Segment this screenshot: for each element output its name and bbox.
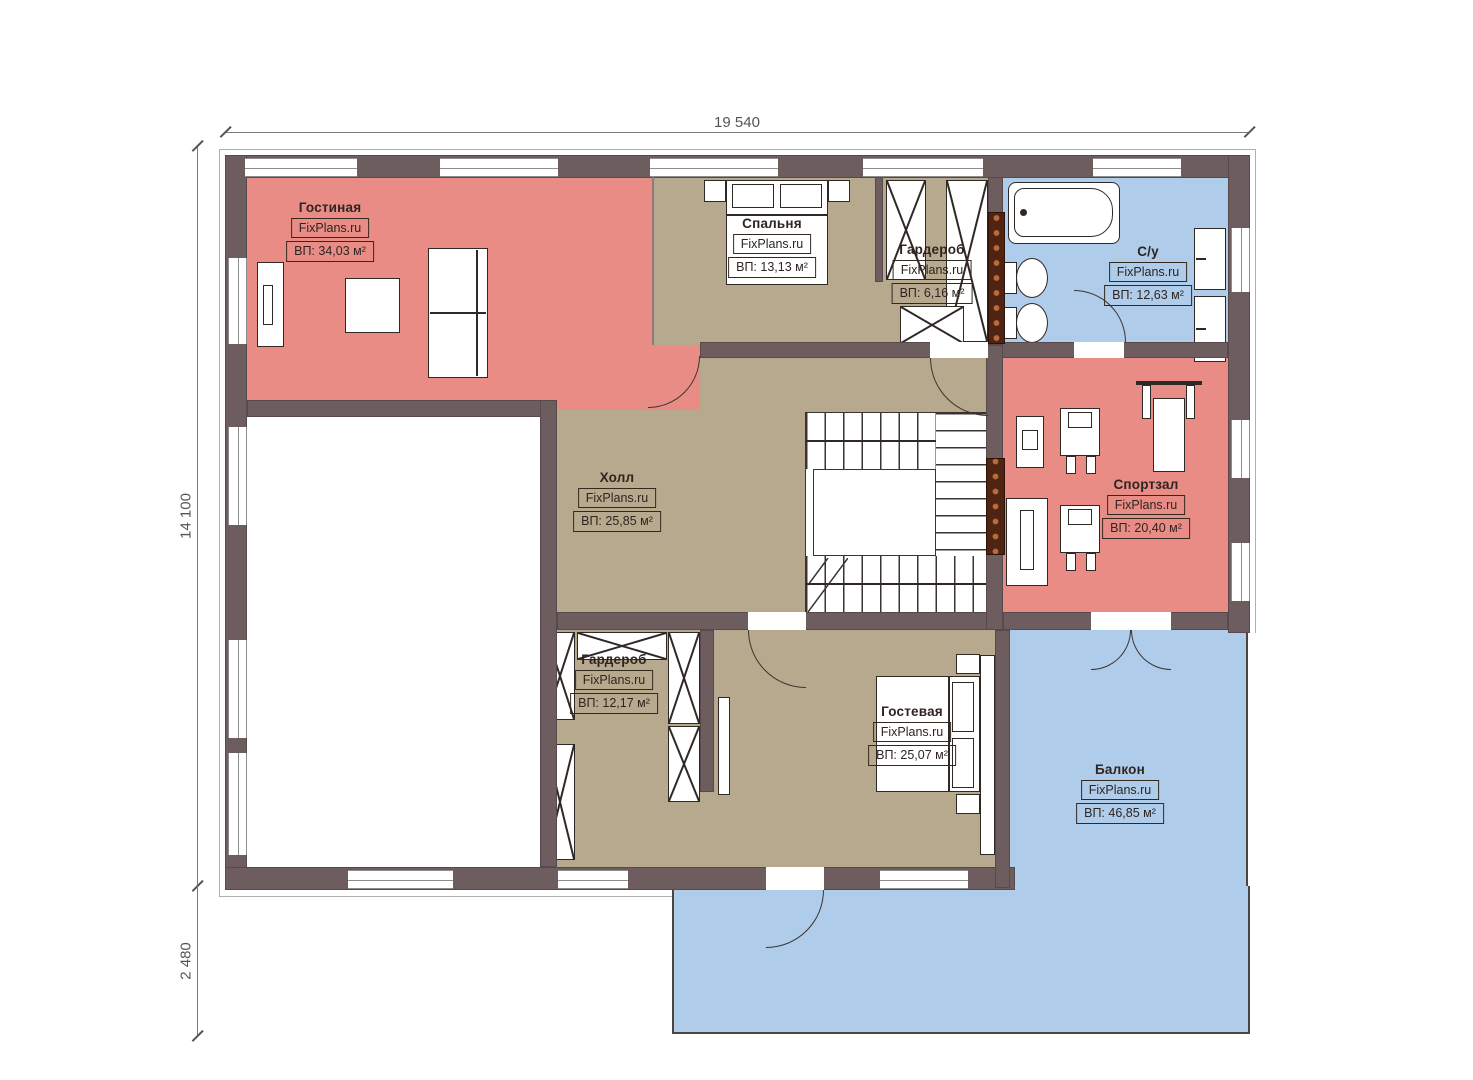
gym-machine-center-top-pad	[1068, 412, 1092, 428]
room-label-bedroom: Спальня FixPlans.ru ВП: 13,13 м²	[728, 216, 816, 278]
room-name: Гардероб	[570, 652, 658, 667]
door-opening-hall-corridor	[930, 342, 988, 358]
room-watermark: FixPlans.ru	[1107, 495, 1186, 515]
dimension-text-left-lower: 2 480	[178, 942, 195, 980]
partition-living-bedroom	[652, 177, 654, 345]
room-label-living: Гостиная FixPlans.ru ВП: 34,03 м²	[286, 200, 374, 262]
room-watermark: FixPlans.ru	[1109, 262, 1188, 282]
room-balcony-area-right	[1010, 628, 1248, 888]
window-top-3	[650, 158, 778, 177]
room-balcony-area-bottom	[672, 886, 1250, 1034]
bath-cabinet-2-handle	[1196, 328, 1206, 330]
room-watermark: FixPlans.ru	[873, 722, 952, 742]
wall-guest-right	[995, 630, 1010, 888]
bath-cabinet-1-handle	[1196, 258, 1206, 260]
room-watermark: FixPlans.ru	[893, 260, 972, 280]
room-name: С/у	[1104, 244, 1192, 259]
door-opening-bathroom	[1074, 342, 1124, 358]
window-left-3	[228, 640, 247, 738]
room-watermark: FixPlans.ru	[291, 218, 370, 238]
stair-mid-line-top	[806, 440, 936, 442]
gym-machine-small-seat	[1022, 430, 1038, 450]
dimension-text-top: 19 540	[714, 114, 760, 131]
toilet-2-bowl	[1016, 303, 1048, 343]
gym-rack-bench	[1153, 398, 1185, 472]
room-name: Спальня	[728, 216, 816, 231]
outer-face-line-right	[1255, 149, 1256, 633]
staircase	[805, 412, 987, 614]
radiator-upper	[988, 212, 1005, 344]
gym-rack-upright-right	[1186, 385, 1195, 419]
wall-living-bottom	[247, 400, 557, 417]
stair-start-mark	[808, 558, 848, 612]
window-right-2	[1231, 420, 1250, 478]
stair-treads-right	[936, 413, 986, 556]
door-opening-guest-balcony	[766, 867, 824, 890]
room-label-hall: Холл FixPlans.ru ВП: 25,85 м²	[573, 470, 661, 532]
door-opening-gym-balcony	[1091, 612, 1171, 630]
room-area: ВП: 6,16 м²	[892, 283, 973, 303]
wall-bedroom-wardrobe-divider	[875, 177, 883, 282]
room-area: ВП: 46,85 м²	[1076, 803, 1164, 823]
room-area: ВП: 12,63 м²	[1104, 285, 1192, 305]
gym-machine-center-top-leg1	[1066, 456, 1076, 474]
outer-face-line-top	[219, 149, 1256, 150]
wardrobe-top-unit-3	[900, 306, 964, 344]
gym-machine-center-bottom-pad	[1068, 509, 1092, 525]
window-bottom-2	[558, 870, 628, 889]
stair-void	[813, 469, 936, 556]
room-label-gym: Спортзал FixPlans.ru ВП: 20,40 м²	[1102, 477, 1190, 539]
room-label-balcony: Балкон FixPlans.ru ВП: 46,85 м²	[1076, 762, 1164, 824]
wall-void-right	[540, 400, 557, 867]
living-sofa-cushion-line	[430, 312, 486, 314]
dimension-line-top	[225, 132, 1250, 133]
window-top-2	[440, 158, 558, 177]
mirror-panel	[718, 697, 730, 795]
bedroom-nightstand-right	[828, 180, 850, 202]
window-bottom-1	[348, 870, 453, 889]
window-right-1	[1231, 228, 1250, 292]
bathtub-inner	[1014, 188, 1113, 237]
guest-nightstand-bottom	[956, 794, 980, 814]
wardrobe-bottom-unit-4	[668, 632, 700, 724]
wardrobe-bottom-unit-5	[668, 726, 700, 802]
room-area: ВП: 34,03 м²	[286, 241, 374, 261]
living-console-inner	[263, 285, 273, 325]
guest-nightstand-top	[956, 654, 980, 674]
room-name: Гостевая	[868, 704, 956, 719]
window-top-5	[1093, 158, 1181, 177]
floor-plan-canvas: Гостиная FixPlans.ru ВП: 34,03 м² Спальн…	[0, 0, 1473, 1080]
window-bottom-3	[880, 870, 968, 889]
radiator-gym	[986, 458, 1005, 555]
bedroom-pillow-left	[732, 184, 774, 208]
dimension-line-left-lower	[197, 886, 198, 1036]
dimension-text-left: 14 100	[178, 493, 195, 539]
door-opening-hall-lower	[748, 612, 806, 630]
room-area: ВП: 25,85 м²	[573, 511, 661, 531]
bathtub-drain	[1020, 209, 1027, 216]
room-watermark: FixPlans.ru	[578, 488, 657, 508]
bedroom-pillow-right	[780, 184, 822, 208]
room-watermark: FixPlans.ru	[733, 234, 812, 254]
dimension-line-left	[197, 146, 198, 886]
room-area: ВП: 13,13 м²	[728, 257, 816, 277]
toilet-1-bowl	[1016, 258, 1048, 298]
wall-wardrobe-guest-divider	[700, 630, 714, 792]
room-area: ВП: 12,17 м²	[570, 693, 658, 713]
gym-machine-center-bottom-leg2	[1086, 553, 1096, 571]
guest-dresser	[980, 655, 995, 855]
window-left-2	[228, 427, 247, 525]
room-label-bathroom: С/у FixPlans.ru ВП: 12,63 м²	[1104, 244, 1192, 306]
outer-face-line-left	[219, 149, 220, 897]
window-top-4	[863, 158, 983, 177]
window-left-4	[228, 753, 247, 855]
room-name: Гостиная	[286, 200, 374, 215]
gym-bike-column	[1020, 510, 1034, 570]
room-label-wardrobe-bottom: Гардероб FixPlans.ru ВП: 12,17 м²	[570, 652, 658, 714]
outer-face-line-bottom	[219, 896, 674, 897]
room-area: ВП: 25,07 м²	[868, 745, 956, 765]
room-label-guest: Гостевая FixPlans.ru ВП: 25,07 м²	[868, 704, 956, 766]
window-top-1	[245, 158, 357, 177]
gym-machine-center-top-leg2	[1086, 456, 1096, 474]
living-table	[345, 278, 400, 333]
room-name: Спортзал	[1102, 477, 1190, 492]
room-name: Холл	[573, 470, 661, 485]
window-right-3	[1231, 543, 1250, 601]
bedroom-nightstand-left	[704, 180, 726, 202]
room-name: Балкон	[1076, 762, 1164, 777]
room-label-wardrobe-top: Гардероб FixPlans.ru ВП: 6,16 м²	[892, 242, 973, 304]
room-watermark: FixPlans.ru	[1081, 780, 1160, 800]
room-watermark: FixPlans.ru	[575, 670, 654, 690]
gym-rack-upright-left	[1142, 385, 1151, 419]
room-area: ВП: 20,40 м²	[1102, 518, 1190, 538]
window-left-1	[228, 258, 247, 344]
room-name: Гардероб	[892, 242, 973, 257]
gym-machine-center-bottom-leg1	[1066, 553, 1076, 571]
